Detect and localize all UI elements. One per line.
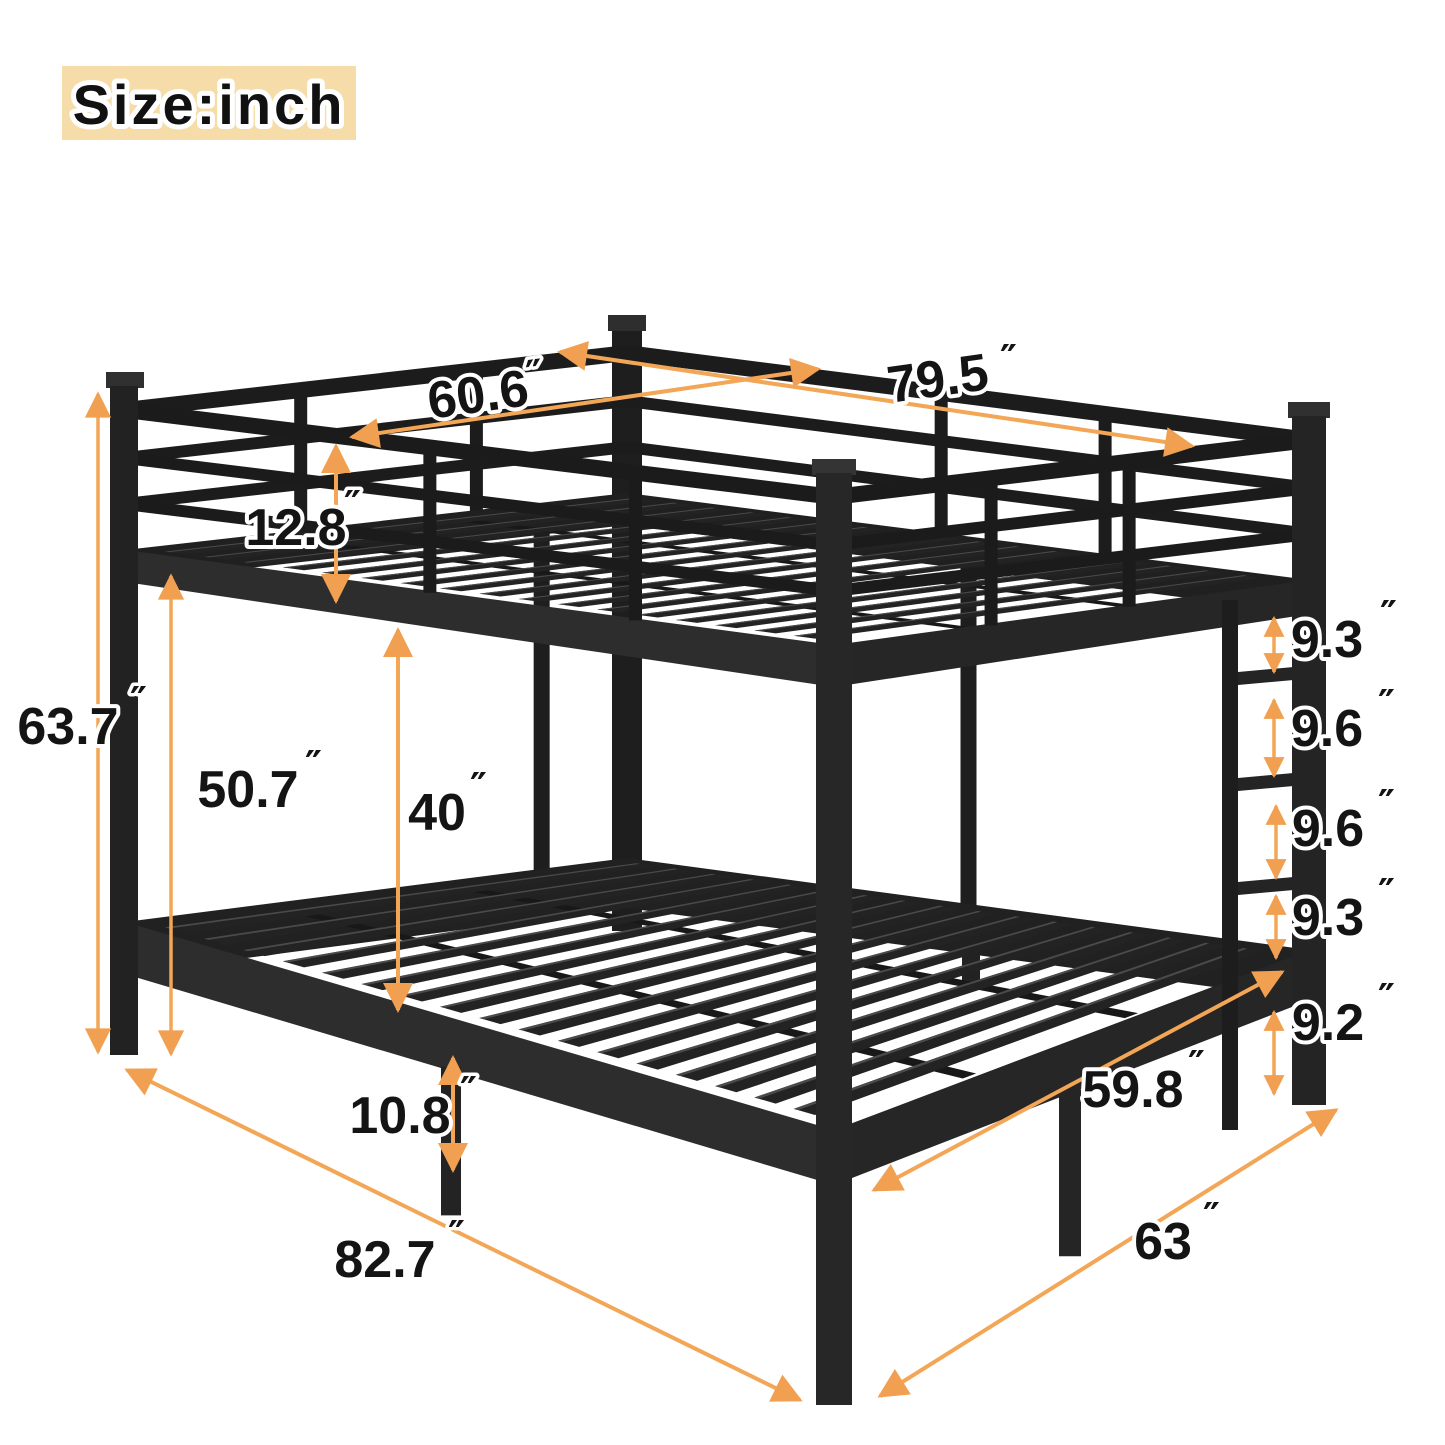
ladder-step-gap-3-value: 9.6 — [1292, 800, 1364, 858]
size-unit-badge-label: Size:inch — [73, 73, 346, 136]
inch-mark: ″ — [130, 679, 147, 723]
bunk-bed-dimension-diagram: Size:inch 60.6 ″ 79.5 ″ 12.8 ″ 63.7 ″ 50… — [0, 0, 1445, 1445]
ladder-bottom-gap-value: 9.2 — [1292, 994, 1364, 1052]
size-unit-badge: Size:inch — [62, 66, 356, 140]
lower-leg-height-value: 10.8 — [349, 1087, 450, 1145]
inch-mark: ″ — [460, 1069, 477, 1113]
ladder-step-gap-1-value: 9.3 — [1291, 611, 1363, 669]
lower-bed-width-value: 59.8 — [1082, 1061, 1183, 1119]
inch-mark: ″ — [1378, 682, 1395, 726]
inch-mark: ″ — [1188, 1043, 1205, 1087]
inch-mark: ″ — [305, 743, 322, 787]
inch-mark: ″ — [344, 483, 361, 527]
inch-mark: ″ — [1203, 1195, 1220, 1239]
inch-mark: ″ — [1378, 871, 1395, 915]
bunk-clearance-value: 40 — [408, 784, 466, 842]
diagram-canvas: Size:inch 60.6 ″ 79.5 ″ 12.8 ″ 63.7 ″ 50… — [0, 0, 1445, 1445]
overall-width-arrow — [880, 1110, 1336, 1396]
inch-mark: ″ — [1378, 782, 1395, 826]
dimension-overall-width: 63 ″ — [880, 1110, 1336, 1396]
inch-mark: ″ — [1378, 976, 1395, 1020]
inch-mark: ″ — [448, 1213, 465, 1257]
inch-mark: ″ — [1380, 593, 1397, 637]
under-upper-bunk-height-value: 50.7 — [197, 761, 298, 819]
ladder-step-gap-4-value: 9.3 — [1292, 889, 1364, 947]
ladder-step-gap-2-value: 9.6 — [1291, 700, 1363, 758]
guardrail-height-value: 12.8 — [245, 499, 346, 557]
overall-width-value: 63 — [1134, 1213, 1192, 1271]
inch-mark: ″ — [470, 765, 487, 809]
overall-height-value: 63.7 — [17, 698, 118, 756]
inch-mark: ″ — [1000, 337, 1017, 381]
overall-length-value: 82.7 — [334, 1231, 435, 1289]
